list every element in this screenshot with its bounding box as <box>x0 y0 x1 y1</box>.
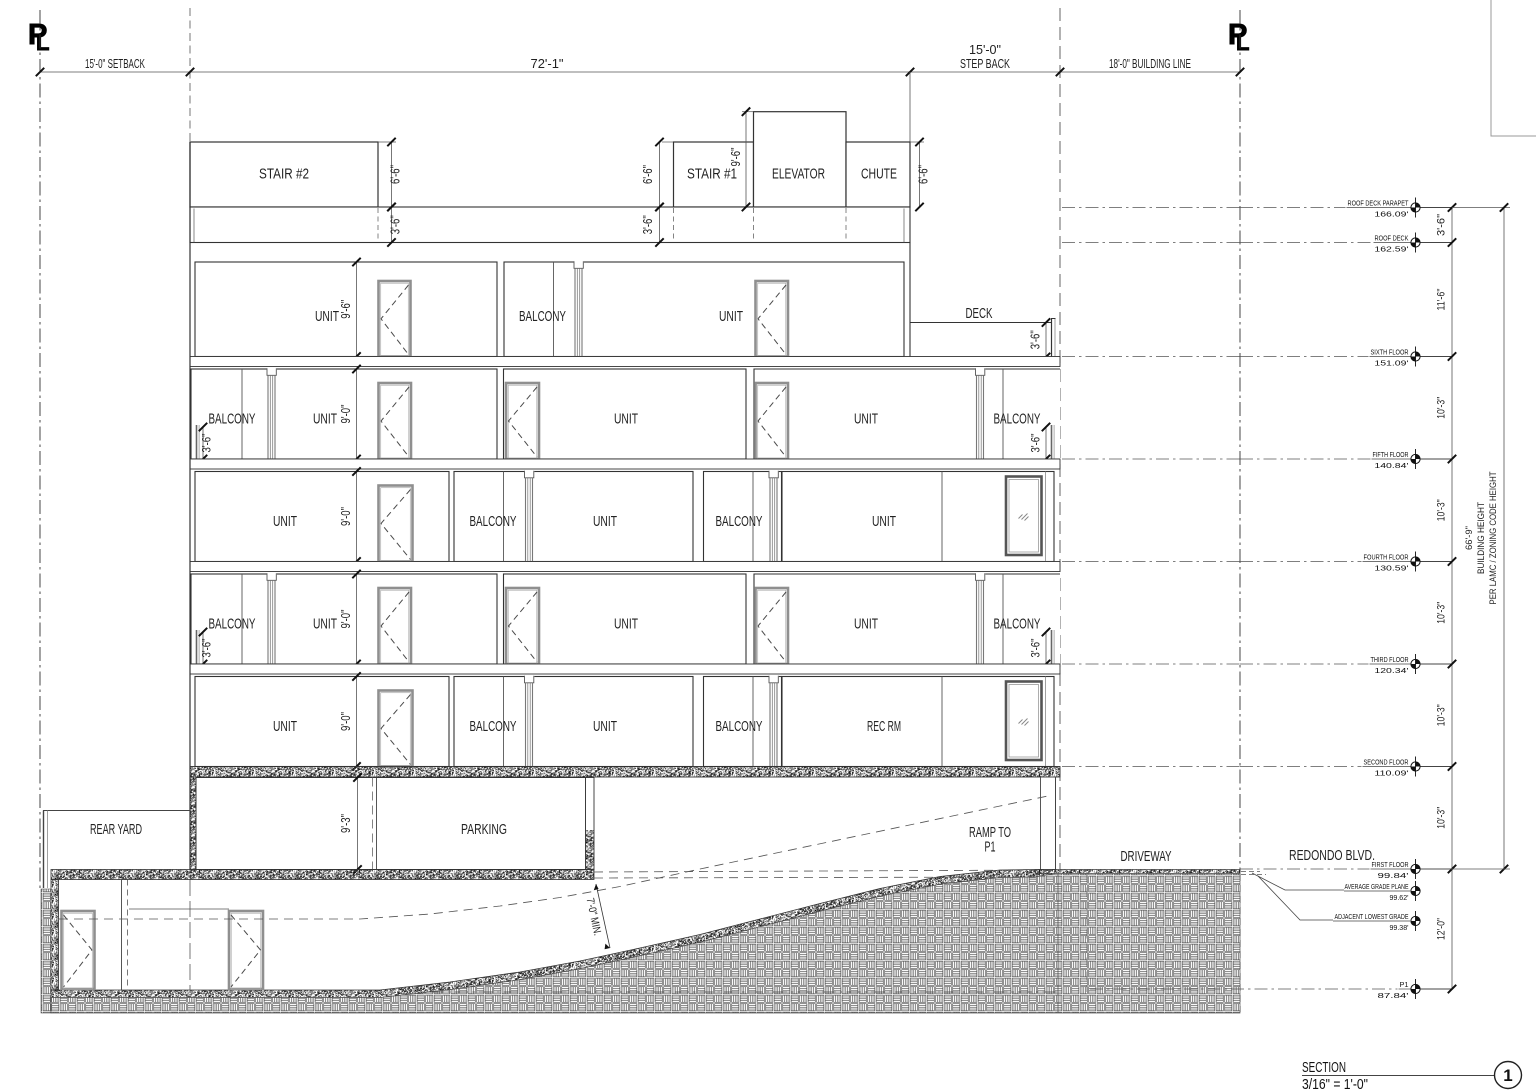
svg-text:9'-6": 9'-6" <box>338 299 353 318</box>
svg-text:15'-0" SETBACK: 15'-0" SETBACK <box>85 57 145 71</box>
svg-text:BALCONY: BALCONY <box>994 616 1041 633</box>
svg-text:99.38': 99.38' <box>1390 923 1410 932</box>
svg-text:ELEVATOR: ELEVATOR <box>772 166 825 183</box>
svg-text:FIFTH FLOOR: FIFTH FLOOR <box>1373 450 1409 459</box>
svg-text:66'-9": 66'-9" <box>1464 526 1474 550</box>
svg-text:UNIT: UNIT <box>719 308 743 325</box>
svg-text:140.84': 140.84' <box>1374 461 1409 470</box>
svg-text:AVERAGE GRADE PLANE: AVERAGE GRADE PLANE <box>1345 882 1409 891</box>
svg-text:9'-3": 9'-3" <box>338 814 353 833</box>
svg-text:UNIT: UNIT <box>273 718 297 735</box>
svg-text:P1: P1 <box>1400 980 1409 989</box>
svg-text:110.09': 110.09' <box>1374 769 1409 778</box>
svg-text:162.59': 162.59' <box>1374 245 1409 254</box>
svg-text:9'-0": 9'-0" <box>338 507 353 526</box>
svg-text:6'-6": 6'-6" <box>916 165 931 184</box>
svg-text:UNIT: UNIT <box>854 411 878 428</box>
svg-text:3'-6": 3'-6" <box>202 639 214 658</box>
svg-text:9'-6": 9'-6" <box>728 147 743 166</box>
svg-text:BALCONY: BALCONY <box>209 411 256 428</box>
svg-text:3'-6": 3'-6" <box>388 215 403 234</box>
svg-text:BALCONY: BALCONY <box>209 616 256 633</box>
svg-text:10'-3": 10'-3" <box>1436 397 1448 419</box>
svg-text:REDONDO BLVD.: REDONDO BLVD. <box>1289 847 1375 864</box>
svg-text:9'-0": 9'-0" <box>338 712 353 731</box>
svg-text:6'-6": 6'-6" <box>640 165 655 184</box>
svg-text:ROOF DECK PARAPET: ROOF DECK PARAPET <box>1348 199 1409 208</box>
svg-text:99.84': 99.84' <box>1378 871 1410 880</box>
svg-text:STAIR #2: STAIR #2 <box>259 166 309 183</box>
svg-text:BUILDING HEIGHT: BUILDING HEIGHT <box>1476 502 1486 574</box>
svg-text:P1: P1 <box>985 839 996 856</box>
svg-text:FOURTH FLOOR: FOURTH FLOOR <box>1364 553 1409 562</box>
svg-text:L: L <box>1236 30 1249 55</box>
svg-text:12'-0": 12'-0" <box>1436 918 1448 940</box>
svg-text:87.84': 87.84' <box>1378 991 1410 1000</box>
svg-text:SECOND FLOOR: SECOND FLOOR <box>1364 758 1409 767</box>
svg-text:3/16" = 1'-0": 3/16" = 1'-0" <box>1302 1077 1368 1091</box>
svg-text:3'-6": 3'-6" <box>1031 434 1043 453</box>
svg-text:DECK: DECK <box>966 305 993 322</box>
svg-text:STAIR #1: STAIR #1 <box>687 166 737 183</box>
svg-text:120.34': 120.34' <box>1374 666 1409 675</box>
svg-text:BALCONY: BALCONY <box>470 718 517 735</box>
svg-text:FIRST FLOOR: FIRST FLOOR <box>1372 860 1409 869</box>
svg-text:1: 1 <box>1503 1066 1512 1085</box>
svg-text:BALCONY: BALCONY <box>994 411 1041 428</box>
svg-text:6'-6": 6'-6" <box>388 165 403 184</box>
svg-text:ROOF DECK: ROOF DECK <box>1375 234 1409 243</box>
svg-text:UNIT: UNIT <box>614 616 638 633</box>
svg-text:STEP BACK: STEP BACK <box>960 57 1010 71</box>
svg-text:BALCONY: BALCONY <box>716 718 763 735</box>
svg-text:BALCONY: BALCONY <box>519 308 566 325</box>
svg-text:10'-3": 10'-3" <box>1436 704 1448 726</box>
svg-text:UNIT: UNIT <box>593 513 617 530</box>
svg-text:BALCONY: BALCONY <box>716 513 763 530</box>
svg-text:UNIT: UNIT <box>872 513 896 530</box>
svg-text:3'-6": 3'-6" <box>640 215 655 234</box>
svg-text:10'-3": 10'-3" <box>1436 807 1448 829</box>
svg-text:72'-1": 72'-1" <box>531 57 564 71</box>
svg-text:151.09': 151.09' <box>1374 359 1409 368</box>
svg-text:L: L <box>36 30 49 55</box>
svg-text:UNIT: UNIT <box>854 616 878 633</box>
svg-text:9'-0": 9'-0" <box>338 404 353 423</box>
svg-text:DRIVEWAY: DRIVEWAY <box>1121 848 1172 865</box>
svg-text:CHUTE: CHUTE <box>861 166 897 183</box>
svg-text:130.59': 130.59' <box>1374 564 1409 573</box>
svg-text:11'-6": 11'-6" <box>1436 288 1448 310</box>
svg-text:UNIT: UNIT <box>614 411 638 428</box>
svg-text:10'-3": 10'-3" <box>1436 499 1448 521</box>
svg-text:PER LAMC / ZONING CODE HEIGHT: PER LAMC / ZONING CODE HEIGHT <box>1488 471 1498 604</box>
svg-text:BALCONY: BALCONY <box>470 513 517 530</box>
svg-text:3'-6": 3'-6" <box>1028 330 1043 349</box>
svg-text:PARKING: PARKING <box>461 821 507 838</box>
svg-text:REC RM: REC RM <box>867 718 901 735</box>
svg-text:15'-0": 15'-0" <box>969 43 1001 57</box>
svg-text:3'-6": 3'-6" <box>1031 639 1043 658</box>
svg-text:3'-6": 3'-6" <box>202 434 214 453</box>
svg-text:10'-3": 10'-3" <box>1436 602 1448 624</box>
svg-text:SECTION: SECTION <box>1302 1060 1346 1076</box>
svg-text:166.09': 166.09' <box>1374 210 1409 219</box>
svg-text:UNIT: UNIT <box>313 616 337 633</box>
svg-text:ADJACENT LOWEST GRADE: ADJACENT LOWEST GRADE <box>1335 912 1409 921</box>
svg-text:99.62': 99.62' <box>1390 893 1410 902</box>
svg-text:18'-0" BUILDING LINE: 18'-0" BUILDING LINE <box>1109 57 1191 71</box>
svg-text:REAR YARD: REAR YARD <box>90 821 142 838</box>
svg-text:UNIT: UNIT <box>593 718 617 735</box>
svg-text:UNIT: UNIT <box>315 308 339 325</box>
svg-text:THIRD FLOOR: THIRD FLOOR <box>1371 655 1409 664</box>
svg-text:UNIT: UNIT <box>313 411 337 428</box>
svg-text:3'-6": 3'-6" <box>1436 214 1448 236</box>
svg-text:SIXTH FLOOR: SIXTH FLOOR <box>1371 348 1409 357</box>
svg-text:UNIT: UNIT <box>273 513 297 530</box>
svg-text:9'-0": 9'-0" <box>338 609 353 628</box>
